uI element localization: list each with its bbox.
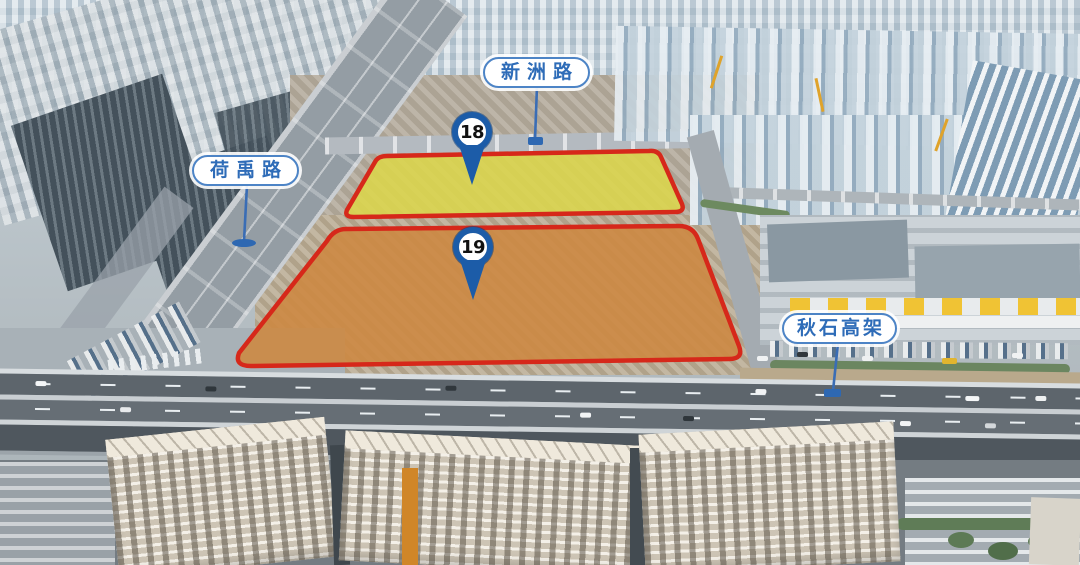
tree-canopy-2 bbox=[988, 542, 1018, 560]
vehicle bbox=[580, 413, 591, 418]
residential-tower-b bbox=[339, 430, 640, 565]
vehicle bbox=[1035, 396, 1046, 401]
vehicle bbox=[862, 356, 873, 361]
pin-number: 18 bbox=[460, 122, 484, 143]
vehicle bbox=[445, 386, 456, 391]
pin-number: 19 bbox=[461, 237, 485, 258]
vehicle bbox=[1012, 353, 1023, 358]
vehicle bbox=[683, 416, 694, 421]
vehicle bbox=[755, 389, 766, 394]
map-pin-19: 19 bbox=[453, 227, 493, 300]
aerial-photo: 新洲路 荷禹路 秋石高架 18 19 bbox=[0, 0, 1080, 565]
low-building-right bbox=[1029, 497, 1080, 565]
bus bbox=[942, 358, 957, 364]
bottom-left-parking bbox=[0, 462, 115, 565]
pin-tail bbox=[460, 260, 486, 300]
residential-tower-c bbox=[639, 421, 901, 565]
road-label-xinzhou: 新洲路 bbox=[483, 57, 590, 88]
pin-tail bbox=[459, 145, 485, 185]
vehicle bbox=[797, 352, 808, 357]
vehicle bbox=[985, 423, 996, 428]
residential-tower-a bbox=[105, 417, 338, 565]
vehicle bbox=[205, 386, 216, 391]
road-label-qiushi: 秋石高架 bbox=[782, 313, 897, 344]
road-label-heyu: 荷禹路 bbox=[192, 155, 299, 186]
commercial-roof-1 bbox=[767, 220, 909, 283]
vehicle bbox=[900, 421, 911, 426]
vehicle bbox=[35, 381, 46, 386]
vehicle bbox=[120, 407, 131, 412]
tree-canopy-1 bbox=[948, 532, 974, 548]
vehicle bbox=[965, 396, 979, 401]
construction-hoist bbox=[402, 468, 418, 565]
map-pin-18: 18 bbox=[452, 112, 492, 185]
vehicle bbox=[757, 356, 768, 361]
